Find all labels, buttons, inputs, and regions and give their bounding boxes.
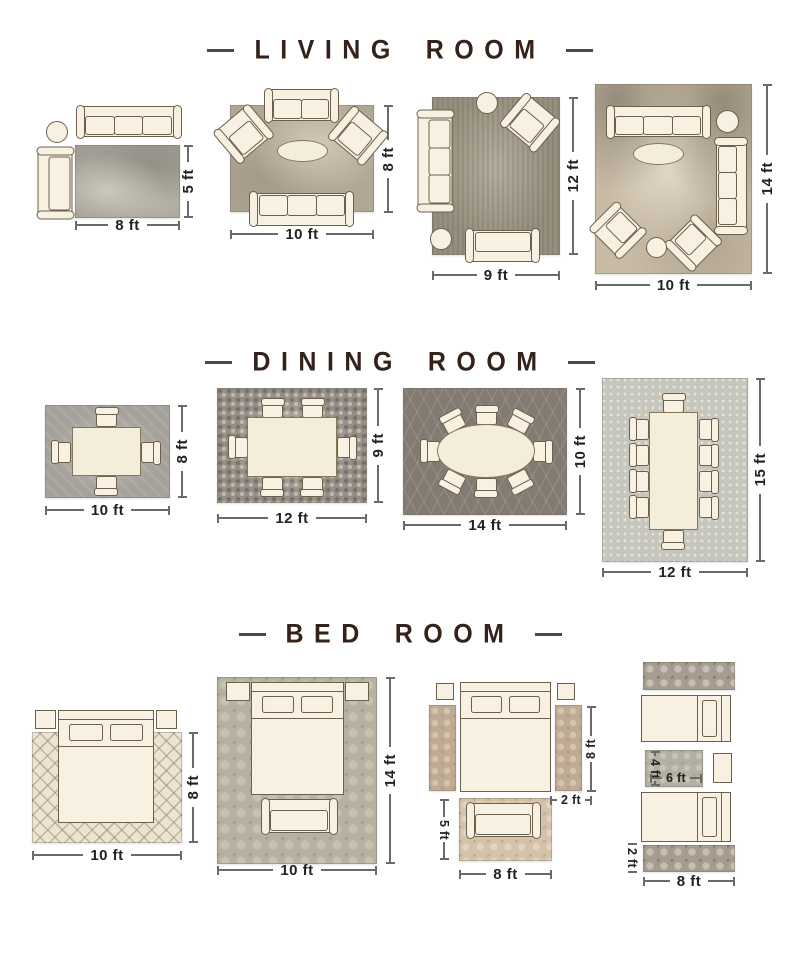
dining-chair bbox=[96, 410, 117, 427]
sofa-cushions bbox=[273, 99, 329, 119]
dining-chair bbox=[262, 477, 283, 494]
dining-chair bbox=[476, 408, 497, 425]
bench bbox=[467, 803, 539, 837]
dining-chair bbox=[141, 442, 158, 463]
dining-chair bbox=[54, 442, 71, 463]
bed bbox=[460, 682, 551, 792]
dimension-runner-length: 8 ft bbox=[581, 706, 601, 792]
nightstand bbox=[345, 682, 369, 701]
rug-size-guide: LIVING ROOM 5 ft 8 ft 8 ft 10 ft bbox=[0, 0, 800, 978]
dining-chair bbox=[262, 401, 283, 418]
dimension-height: 12 ft bbox=[563, 97, 583, 255]
dining-chair bbox=[302, 401, 323, 418]
sofa-cushions bbox=[475, 814, 531, 835]
sofa-arm bbox=[264, 88, 273, 123]
coffee-table bbox=[277, 140, 328, 162]
dimension-width: 9 ft bbox=[432, 265, 560, 285]
sofa bbox=[418, 112, 453, 212]
pillows bbox=[461, 692, 550, 713]
dining-chair bbox=[699, 497, 716, 518]
loveseat bbox=[38, 149, 73, 219]
pillow bbox=[110, 724, 144, 741]
section-title-text: LIVING ROOM bbox=[254, 35, 545, 66]
dining-chair bbox=[632, 471, 649, 492]
dimension-width: 12 ft bbox=[217, 508, 367, 528]
sofa bbox=[251, 193, 353, 226]
section-title-living-room: LIVING ROOM bbox=[0, 36, 800, 65]
dimension-middle-rug-width: 6 ft bbox=[650, 768, 702, 788]
pillow bbox=[471, 696, 502, 713]
loveseat bbox=[467, 230, 539, 262]
dining-chair bbox=[231, 437, 248, 458]
sofa-cushions bbox=[270, 810, 328, 831]
headboard bbox=[721, 793, 730, 841]
pillow bbox=[702, 797, 717, 837]
sofa-arm bbox=[37, 147, 75, 156]
dimension-height: 14 ft bbox=[380, 677, 400, 864]
section-title-bed-room: BED ROOM bbox=[0, 620, 800, 649]
bed-body bbox=[252, 718, 343, 794]
sofa bbox=[607, 106, 709, 137]
sofa-arm bbox=[250, 191, 259, 227]
dining-table bbox=[247, 417, 337, 477]
sofa-arm bbox=[606, 105, 615, 139]
pouf bbox=[646, 237, 667, 258]
dining-chair bbox=[533, 441, 550, 462]
sofa-arm bbox=[173, 105, 182, 139]
dimension-height: 10 ft bbox=[570, 388, 590, 515]
title-dash bbox=[568, 361, 595, 364]
sofa-cushions bbox=[259, 196, 345, 216]
title-dash bbox=[239, 633, 266, 636]
pillow bbox=[69, 724, 103, 741]
dimension-height: 9 ft bbox=[368, 388, 388, 503]
dimension-width: 10 ft bbox=[217, 860, 377, 880]
dining-chair bbox=[663, 530, 684, 547]
headboard bbox=[461, 683, 550, 692]
sofa bbox=[77, 106, 180, 137]
sofa-arm bbox=[532, 228, 541, 263]
sofa-cushions bbox=[48, 157, 70, 211]
dining-chair bbox=[632, 445, 649, 466]
dimension-height: 8 ft bbox=[378, 105, 398, 213]
dining-chair bbox=[302, 477, 323, 494]
pillows bbox=[59, 720, 153, 741]
dining-chair bbox=[96, 476, 117, 493]
sofa-arm bbox=[346, 191, 355, 227]
dimension-foot-rug-width: 8 ft bbox=[459, 864, 552, 884]
sofa-cushions bbox=[85, 116, 172, 135]
bed bbox=[251, 682, 344, 795]
nightstand bbox=[226, 682, 250, 701]
nightstand bbox=[35, 710, 56, 729]
nightstand bbox=[713, 753, 732, 783]
title-dash bbox=[205, 361, 232, 364]
bed-body bbox=[642, 793, 697, 841]
coffee-table bbox=[633, 143, 684, 165]
sofa-arm bbox=[417, 110, 455, 119]
dining-table bbox=[649, 412, 698, 530]
bench bbox=[262, 799, 336, 833]
sofa bbox=[716, 138, 747, 233]
sofa-arm bbox=[76, 105, 85, 139]
headboard bbox=[252, 683, 343, 692]
dining-chair bbox=[663, 396, 684, 413]
sofa-arm bbox=[329, 798, 338, 835]
bed-body bbox=[461, 718, 550, 791]
sofa-arm bbox=[702, 105, 711, 139]
bed-body bbox=[59, 746, 153, 822]
rug bbox=[75, 145, 180, 218]
loveseat bbox=[265, 89, 337, 121]
sofa-arm bbox=[261, 798, 270, 835]
dining-chair bbox=[699, 419, 716, 440]
sofa-arm bbox=[532, 802, 541, 839]
sofa-cushions bbox=[475, 233, 531, 253]
dining-chair bbox=[476, 478, 497, 495]
sofa-cushions bbox=[719, 146, 738, 225]
sofa-cushions bbox=[615, 116, 701, 135]
dimension-width: 8 ft bbox=[75, 215, 180, 235]
sofa-arm bbox=[466, 802, 475, 839]
sofa-arm bbox=[417, 204, 455, 213]
dining-chair bbox=[699, 471, 716, 492]
nightstand bbox=[156, 710, 177, 729]
twin-bed bbox=[641, 695, 731, 742]
dimension-height: 15 ft bbox=[750, 378, 770, 562]
title-dash bbox=[566, 49, 593, 52]
title-dash bbox=[207, 49, 234, 52]
pillows bbox=[697, 696, 721, 741]
runner-rug bbox=[429, 705, 456, 791]
title-dash bbox=[535, 633, 562, 636]
dining-chair bbox=[632, 419, 649, 440]
bed-body bbox=[642, 696, 697, 741]
side-table bbox=[46, 121, 68, 143]
dimension-width: 12 ft bbox=[602, 562, 748, 582]
pillows bbox=[697, 793, 721, 841]
dining-chair bbox=[337, 437, 354, 458]
twin-bed bbox=[641, 792, 731, 842]
dimension-width: 14 ft bbox=[403, 515, 567, 535]
runner-rug bbox=[555, 705, 582, 791]
sofa-arm bbox=[714, 137, 748, 146]
side-table bbox=[716, 110, 739, 133]
dimension-foot-rug-height: 5 ft bbox=[434, 799, 454, 860]
pouf bbox=[430, 228, 452, 250]
pillow bbox=[509, 696, 540, 713]
dining-table bbox=[72, 427, 141, 476]
dining-chair bbox=[699, 445, 716, 466]
dimension-runner-width: 2 ft bbox=[622, 843, 642, 873]
sofa-arm bbox=[714, 226, 748, 235]
sofa-arm bbox=[37, 211, 75, 220]
nightstand bbox=[436, 683, 454, 700]
pillow bbox=[301, 696, 333, 713]
dimension-width: 10 ft bbox=[595, 275, 752, 295]
dimension-width: 10 ft bbox=[230, 224, 374, 244]
dining-table bbox=[437, 424, 535, 478]
nightstand bbox=[557, 683, 575, 700]
pillow bbox=[702, 700, 717, 737]
section-title-dining-room: DINING ROOM bbox=[0, 348, 800, 377]
dimension-runner-length: 8 ft bbox=[643, 871, 735, 891]
pillows bbox=[252, 692, 343, 713]
sofa-arm bbox=[330, 88, 339, 123]
dimension-runner-width: 2 ft bbox=[550, 790, 592, 810]
sofa-cushions bbox=[428, 120, 450, 204]
headboard bbox=[59, 711, 153, 720]
headboard bbox=[721, 696, 730, 741]
sofa-arm bbox=[466, 228, 475, 263]
dining-chair bbox=[632, 497, 649, 518]
side-table bbox=[476, 92, 498, 114]
dimension-height: 8 ft bbox=[183, 732, 203, 843]
runner-rug bbox=[643, 662, 735, 690]
runner-rug bbox=[643, 845, 735, 872]
dimension-width: 10 ft bbox=[32, 845, 182, 865]
dimension-height: 8 ft bbox=[172, 405, 192, 498]
pillow bbox=[262, 696, 294, 713]
section-title-text: DINING ROOM bbox=[252, 347, 547, 378]
bed bbox=[58, 710, 154, 823]
dimension-width: 10 ft bbox=[45, 500, 170, 520]
dimension-height: 5 ft bbox=[178, 145, 198, 218]
section-title-text: BED ROOM bbox=[286, 619, 515, 650]
dimension-height: 14 ft bbox=[757, 84, 777, 274]
